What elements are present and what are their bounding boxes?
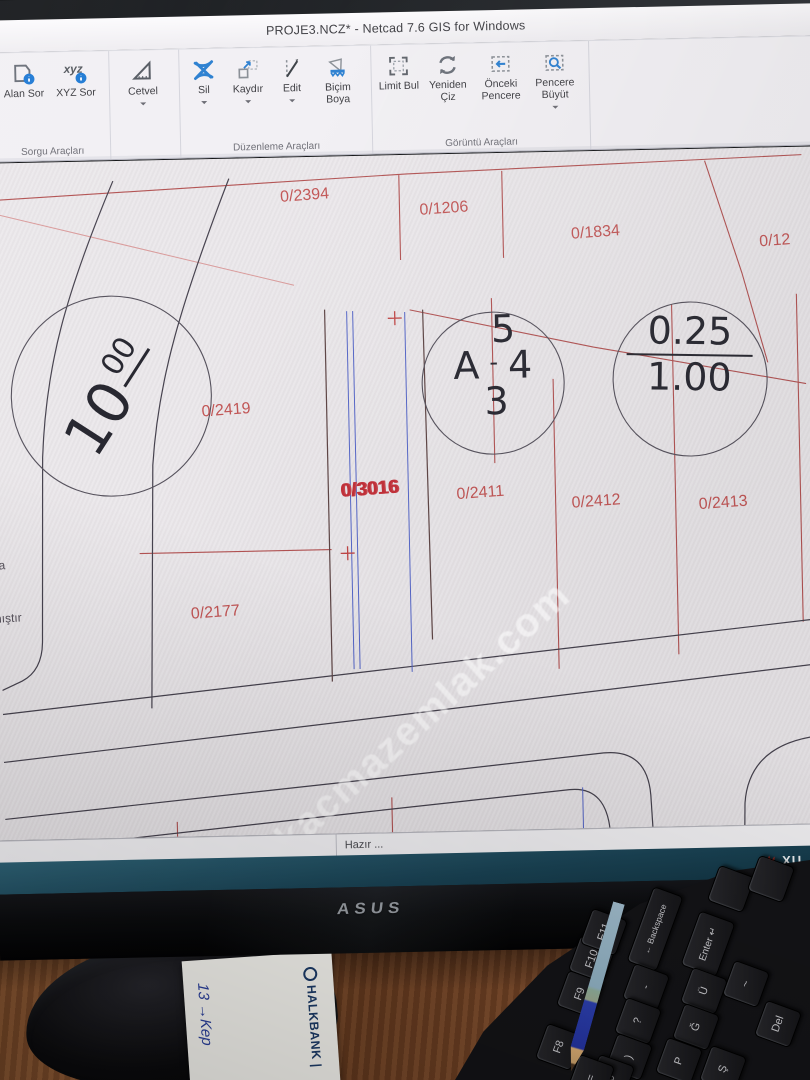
zoom-window-icon [541, 50, 568, 77]
paper-note: HALKBANK | 13 →Kep [182, 951, 341, 1080]
parcel-label-selected: 0/3016 [340, 477, 400, 503]
dropdown-caret-icon [140, 102, 146, 108]
parcel-label: 0/1834 [570, 222, 620, 244]
ratio-annotation: 0.25 1.00 [607, 311, 772, 400]
yeniden-ciz-button[interactable]: Yeniden Çiz [421, 47, 474, 104]
alan-sor-button[interactable]: Alan Sor [0, 56, 50, 101]
group-label-duzenleme: Düzenleme Araçları [181, 140, 372, 155]
alan-sor-label: Alan Sor [4, 88, 45, 101]
xyz-query-icon: xyz [62, 60, 89, 87]
zoning-bottom: 3 [426, 382, 561, 421]
bicim-boya-button[interactable]: Biçim Boya [311, 50, 364, 107]
ruler-triangle-icon [129, 58, 156, 85]
status-message: Hazır ... [345, 839, 384, 852]
paper-brand-mark: | [310, 1063, 324, 1068]
desk-photo: PROJE3.NCZ* - Netcad 7.6 GIS for Windows… [0, 0, 810, 1080]
cetvel-button[interactable]: Cetvel [113, 54, 172, 109]
paper-brand-text: HALKBANK [304, 985, 323, 1061]
group-label-sorgu: Sorgu Araçları [0, 145, 110, 158]
monitor-screen: PROJE3.NCZ* - Netcad 7.6 GIS for Windows… [0, 0, 810, 961]
parcel-label: 0/2177 [190, 602, 240, 624]
limit-selection-icon [385, 53, 412, 80]
move-object-icon [234, 56, 261, 83]
halkbank-logo-icon [303, 967, 318, 982]
zoning-right: 4 [508, 346, 533, 383]
map-annotation: ora [0, 558, 6, 573]
parcel-label: 0/2411 [456, 483, 505, 504]
map-annotation: nmıştır [0, 610, 22, 626]
delete-x-icon [190, 57, 217, 84]
ribbon-group-duzenleme: Sil Kaydır Edit [179, 46, 373, 158]
sil-button[interactable]: Sil [183, 53, 224, 108]
zoning-annotation: 5 A - 4 3 [425, 310, 561, 421]
physical-keyboard: F8 F9 F10 F11 ← Backspace Enter ↵ - ? ) … [455, 860, 810, 1080]
pencere-buyut-button[interactable]: Pencere Büyüt [527, 45, 582, 112]
parcel-label: 0/2394 [280, 185, 330, 207]
dropdown-caret-icon [201, 101, 207, 107]
monitor-brand-logo: ASUS [336, 899, 405, 919]
dropdown-caret-icon [245, 100, 251, 106]
parcel-label: 0/12 [759, 231, 791, 251]
ribbon-group-cetvel: Cetvel [109, 50, 181, 159]
edit-button[interactable]: Edit [271, 51, 312, 106]
road-width-main: 10 [50, 369, 147, 468]
zoning-left: A [453, 348, 480, 385]
ribbon-group-goruntu: Limit Bul Yeniden Çiz Önceki Pencere [371, 41, 591, 154]
ribbon-toolbar: Alan Sor xyz Cetvel XYZ Sor Sorgu Araçla… [0, 35, 810, 162]
ratio-numerator: 0.25 [608, 311, 773, 353]
group-label-goruntu: Görüntü Araçları [373, 135, 590, 151]
dropdown-caret-icon [289, 99, 295, 105]
handwritten-note: 13 →Kep [194, 983, 215, 1046]
limit-bul-button[interactable]: Limit Bul [375, 49, 422, 94]
redraw-refresh-icon [434, 52, 461, 79]
parcel-label: 0/1206 [419, 198, 469, 220]
paper-brand-row: HALKBANK | [303, 967, 324, 1069]
zoning-top: 5 [425, 310, 560, 349]
map-canvas[interactable]: 0/2394 0/1206 0/1834 0/12 8 0/2419 0/301… [0, 146, 810, 840]
area-query-icon [10, 61, 37, 88]
edit-vertex-icon [278, 55, 305, 82]
parcel-label: 0/2412 [571, 491, 621, 513]
ratio-denominator: 1.00 [607, 357, 772, 399]
parcel-label: 0/2413 [698, 493, 748, 515]
window-title: PROJE3.NCZ* - Netcad 7.6 GIS for Windows [266, 18, 526, 37]
ribbon-group-sorgu: Alan Sor xyz Cetvel XYZ Sor Sorgu Araçla… [0, 51, 111, 161]
format-paint-icon [324, 54, 351, 81]
dropdown-caret-icon [552, 105, 558, 111]
zoning-dash: - [489, 351, 498, 374]
kaydir-button[interactable]: Kaydır [223, 52, 272, 107]
cadastral-drawing: 0/2394 0/1206 0/1834 0/12 8 0/2419 0/301… [0, 147, 810, 841]
xyz-sor-button[interactable]: xyz Cetvel XYZ Sor [49, 55, 102, 100]
previous-window-icon [487, 51, 514, 78]
onceki-pencere-button[interactable]: Önceki Pencere [473, 46, 528, 103]
